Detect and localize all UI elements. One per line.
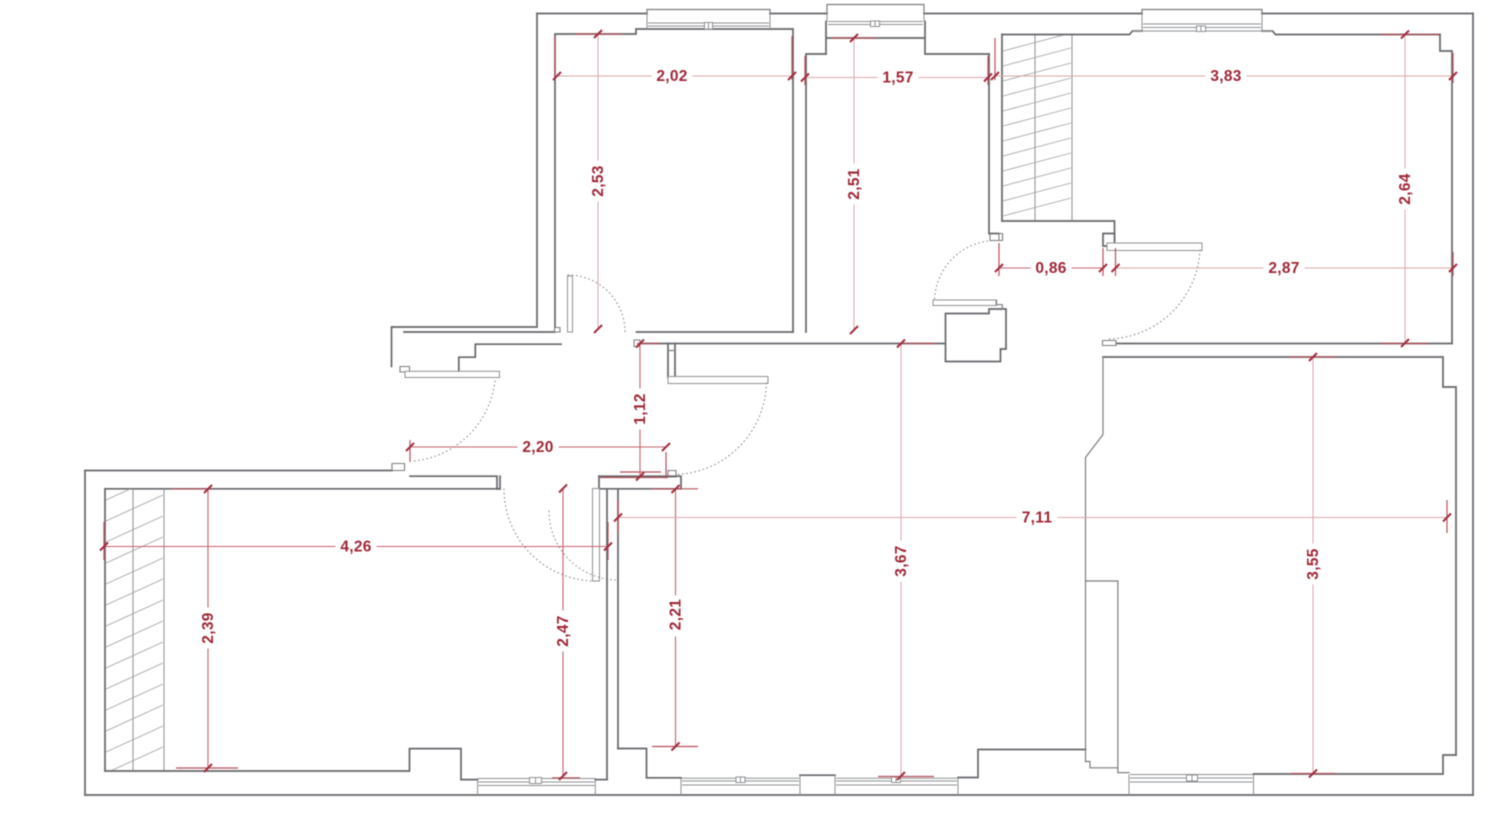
svg-text:2,87: 2,87	[1268, 260, 1299, 277]
svg-text:3,67: 3,67	[893, 545, 910, 576]
svg-text:3,55: 3,55	[1305, 548, 1322, 579]
svg-text:3,83: 3,83	[1210, 68, 1241, 85]
svg-text:2,20: 2,20	[522, 439, 553, 456]
svg-text:1,57: 1,57	[882, 70, 913, 87]
svg-text:2,47: 2,47	[555, 615, 572, 646]
svg-text:1,12: 1,12	[632, 393, 649, 424]
svg-text:2,53: 2,53	[590, 165, 607, 196]
svg-text:4,26: 4,26	[340, 539, 371, 556]
svg-text:2,21: 2,21	[668, 599, 685, 630]
svg-text:0,86: 0,86	[1035, 260, 1066, 277]
svg-text:2,51: 2,51	[846, 168, 863, 199]
svg-text:2,64: 2,64	[1397, 173, 1414, 204]
svg-text:7,11: 7,11	[1022, 510, 1053, 527]
svg-text:2,39: 2,39	[200, 612, 217, 643]
svg-text:2,02: 2,02	[656, 68, 687, 85]
